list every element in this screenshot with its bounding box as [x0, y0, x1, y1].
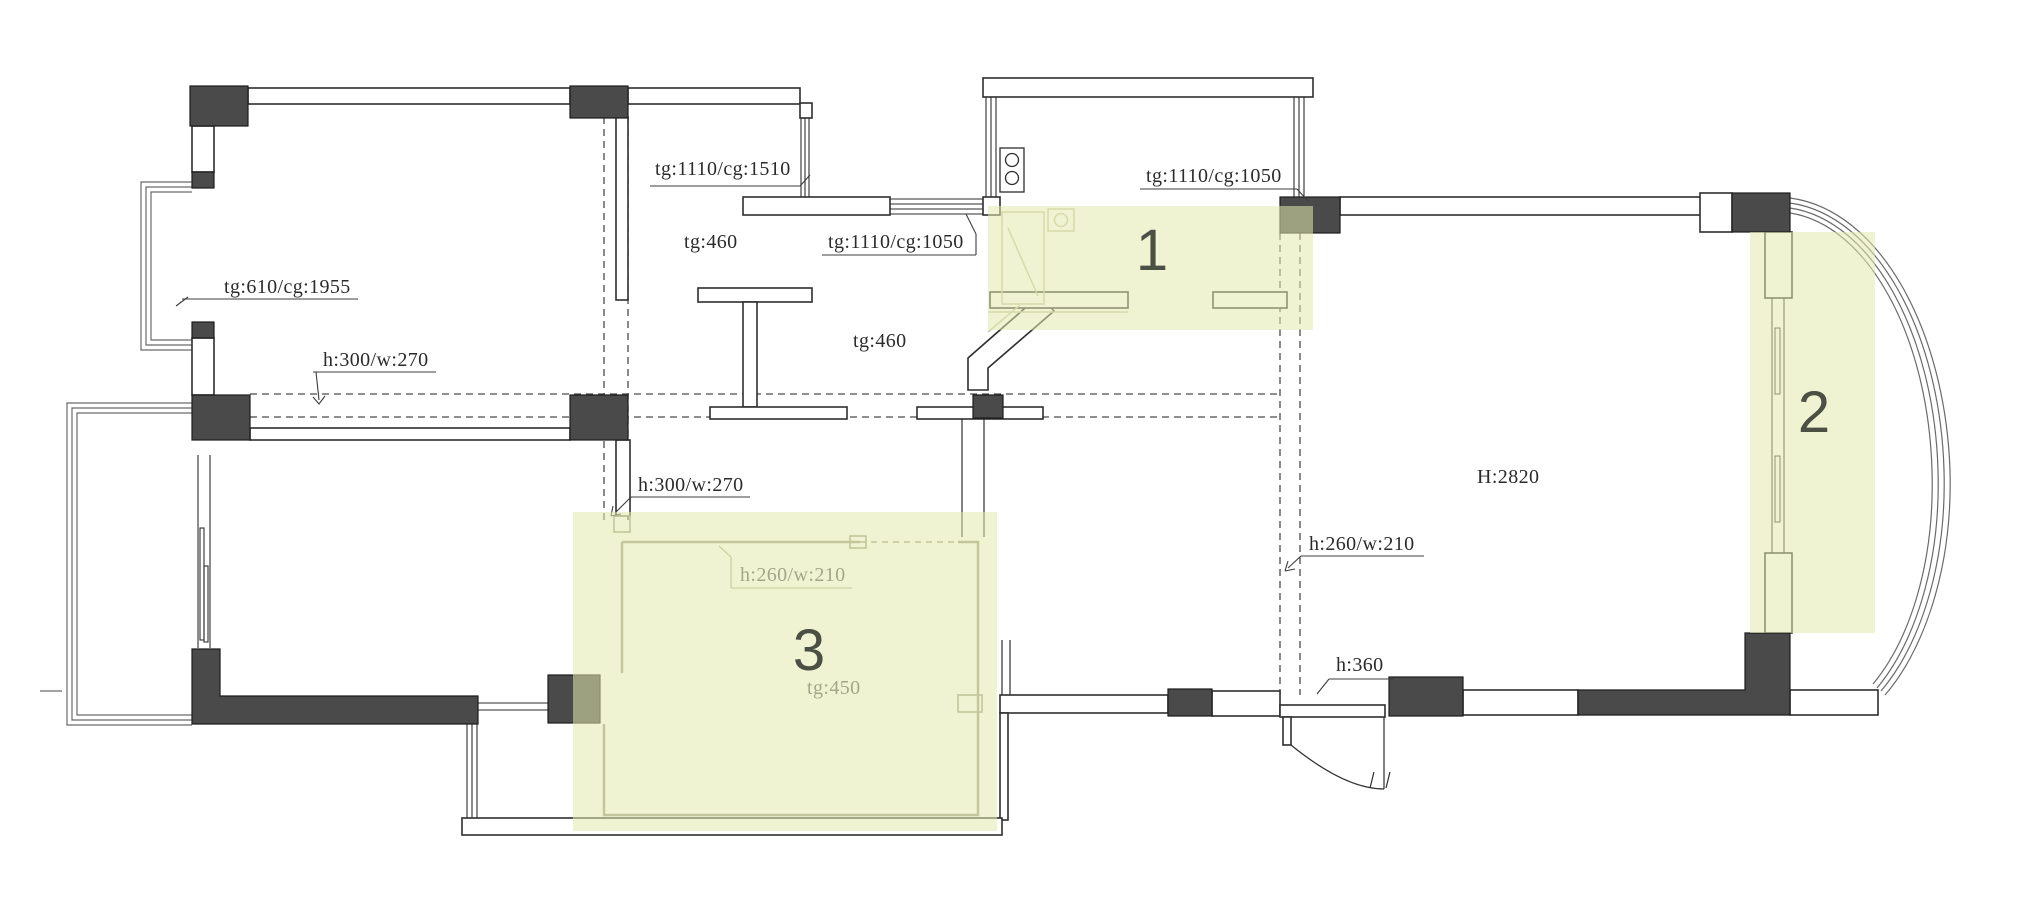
label-window-top-right: tg:1110/cg:1050 — [1146, 165, 1282, 187]
label-ceiling-height: H:2820 — [1477, 466, 1539, 488]
label-entry-beam: h:360 — [1336, 654, 1384, 676]
bay-window-tl-glazing — [141, 182, 192, 350]
zone1-number[interactable]: 1 — [1122, 221, 1182, 281]
zone3-number[interactable]: 3 — [779, 621, 839, 681]
label-hall-sill: tg:460 — [853, 330, 907, 352]
floor-plan-canvas: tg:610/cg:1955 tg:1110/cg:1510 tg:460 tg… — [0, 0, 2022, 905]
stove-fixture — [1000, 148, 1024, 192]
bay-window-bl-glazing — [40, 403, 192, 725]
label-beam-mid: h:300/w:270 — [638, 474, 744, 496]
floor-plan-drawing — [0, 0, 2022, 905]
label-beam-living: h:260/w:210 — [1309, 533, 1415, 555]
label-beam-zone3: h:260/w:210 — [740, 564, 846, 586]
label-window-mid-top: tg:1110/cg:1510 — [655, 158, 791, 180]
zone2-number[interactable]: 2 — [1784, 383, 1844, 443]
label-closet-sill: tg:460 — [684, 231, 738, 253]
entry-door-swing — [1291, 717, 1390, 789]
label-bay-window-tl: tg:610/cg:1955 — [224, 276, 351, 298]
label-window-hall: tg:1110/cg:1050 — [828, 231, 964, 253]
label-beam-left: h:300/w:270 — [323, 349, 429, 371]
